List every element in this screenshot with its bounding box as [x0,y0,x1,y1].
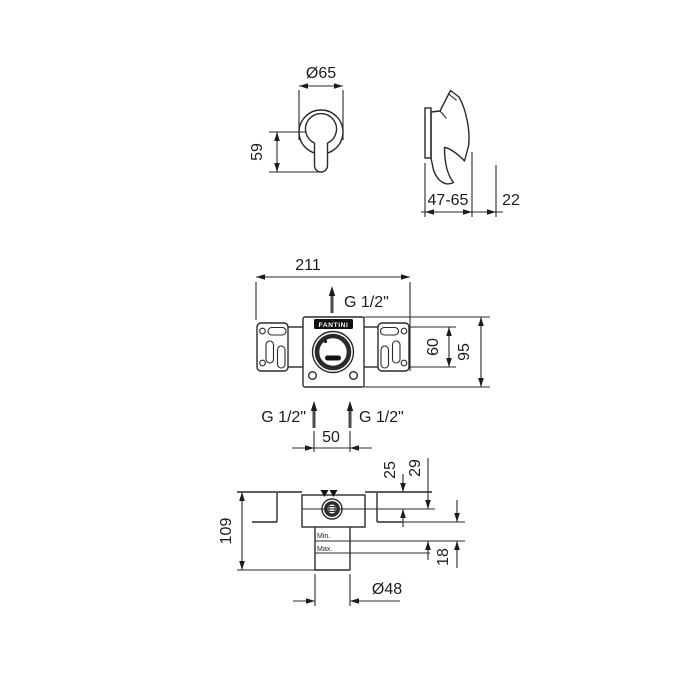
max-label: Max. [317,546,332,553]
screw-hole-right [350,372,358,380]
section-view: 109 25 29 18 Min. Max. Ø48 [218,458,465,606]
inlet-left-thread-label: G 1/2" [261,409,306,426]
dim-handle-projection: 22 [502,192,520,209]
screw-hole-left [309,372,317,380]
dim-wall-depth-range: 47-65 [428,192,469,209]
thread-top-label: G 1/2" [344,294,389,311]
thread-arrow-top [329,286,335,313]
brand-label: FANTINI [319,322,349,329]
technical-drawing-page: Ø65 59 47-65 22 [0,0,700,700]
bracket-view: 211 G 1/2" FANTINI [256,257,490,387]
side-view: 47-65 22 [421,91,520,218]
dim-bracket-width: 211 [295,257,321,274]
section-outline [237,490,432,570]
inlet-right-thread-label: G 1/2" [359,409,404,426]
right-bracket [364,323,409,371]
lever-keyhole-outline [306,114,337,172]
front-view: Ø65 59 [249,65,343,172]
dim-front-diameter: Ø65 [306,65,336,82]
lever-handle-profile [431,91,469,184]
lever-pivot-line [440,111,447,119]
dim-bracket-height: 60 [425,338,442,356]
section-dimension-lines [237,458,465,606]
inlet-arrows: G 1/2" G 1/2" 50 [261,401,404,452]
cartridge-ring [317,336,349,368]
dim-center-to-min: 29 [407,459,424,477]
bracket-dimension-lines [256,274,490,387]
cartridge-dot [324,340,327,343]
dim-cylinder-diameter: Ø48 [372,581,402,598]
dim-plate-height: 95 [456,343,473,361]
dim-adjust-range: 18 [435,548,452,566]
dim-inlet-spacing: 50 [322,429,340,446]
faucet-dimension-drawing: Ø65 59 47-65 22 [0,0,700,700]
wall-flange [425,108,431,158]
dim-wall-to-center: 25 [382,461,399,479]
left-bracket [257,323,303,371]
fixing-mark-right [330,490,338,497]
fixing-mark-left [321,490,329,497]
min-label: Min. [317,533,330,540]
dim-front-height: 59 [249,143,266,161]
cartridge-slot [325,356,341,361]
dim-total-depth: 109 [218,518,235,545]
